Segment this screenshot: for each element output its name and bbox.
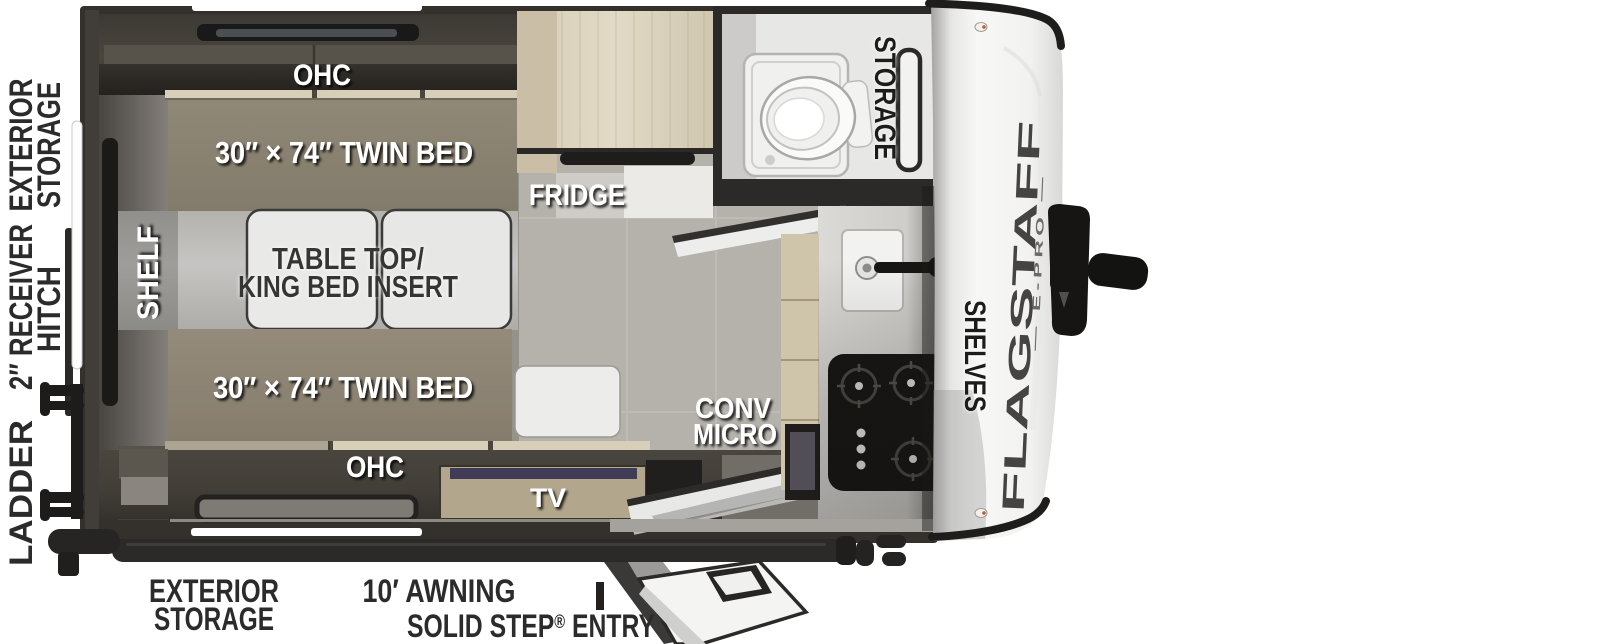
svg-text:10′ AWNING: 10′ AWNING xyxy=(363,573,516,609)
svg-text:SHELVES: SHELVES xyxy=(958,300,991,412)
svg-text:FRIDGE: FRIDGE xyxy=(529,179,625,212)
svg-text:TV: TV xyxy=(530,483,566,513)
svg-text:KING BED INSERT: KING BED INSERT xyxy=(238,269,458,304)
svg-text:OHC: OHC xyxy=(293,59,351,92)
svg-text:SHELF: SHELF xyxy=(132,226,165,320)
svg-text:OHC: OHC xyxy=(346,451,404,484)
svg-text:SOLID STEP® ENTRY: SOLID STEP® ENTRY xyxy=(407,608,655,644)
svg-text:STORAGE: STORAGE xyxy=(154,601,274,637)
svg-text:HITCH: HITCH xyxy=(31,266,67,352)
svg-text:30″ × 74″ TWIN BED: 30″ × 74″ TWIN BED xyxy=(215,135,473,170)
svg-text:30″ × 74″ TWIN BED: 30″ × 74″ TWIN BED xyxy=(213,370,473,405)
svg-text:MICRO: MICRO xyxy=(693,419,777,451)
svg-text:STORAGE: STORAGE xyxy=(868,36,901,160)
svg-text:LADDER: LADDER xyxy=(3,420,39,566)
svg-text:STORAGE: STORAGE xyxy=(31,82,67,208)
